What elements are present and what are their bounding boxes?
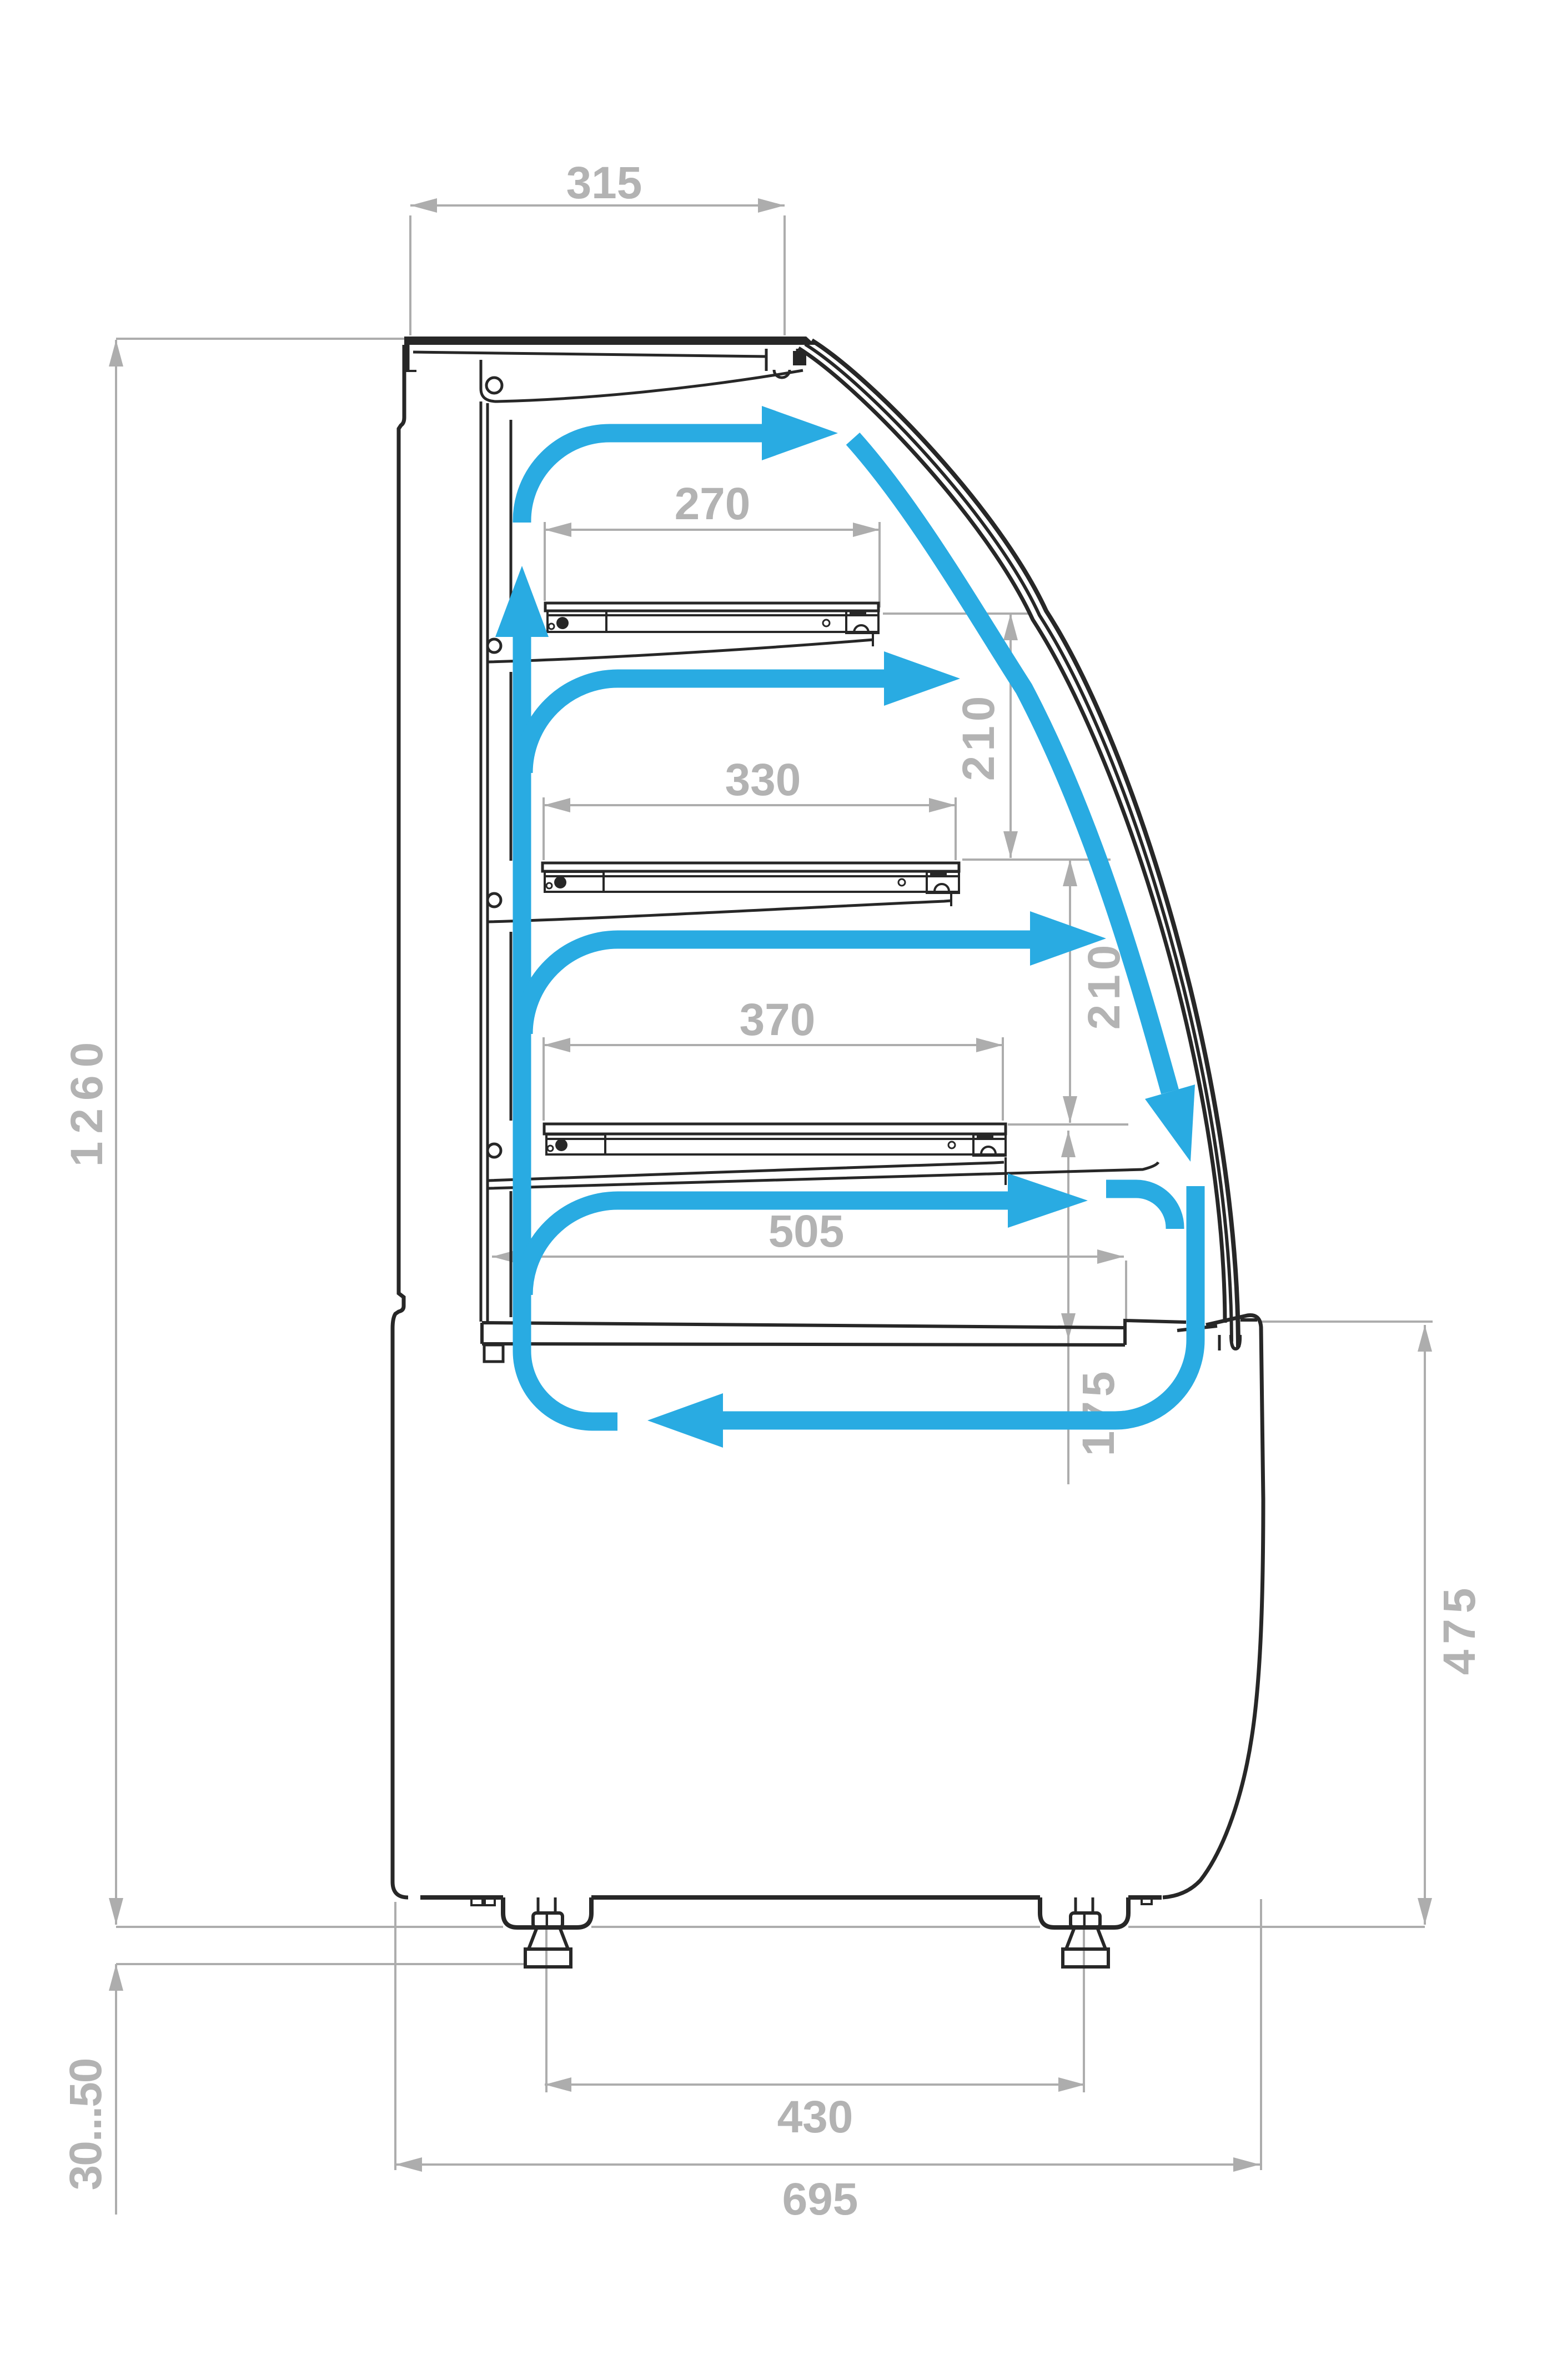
svg-text:475: 475 <box>1434 1583 1485 1675</box>
svg-text:210: 210 <box>953 692 1004 781</box>
svg-text:370: 370 <box>740 995 816 1045</box>
svg-text:505: 505 <box>769 1206 845 1257</box>
svg-text:30...50: 30...50 <box>61 2059 111 2191</box>
svg-text:430: 430 <box>777 2092 853 2142</box>
svg-text:315: 315 <box>566 158 642 208</box>
svg-text:1260: 1260 <box>62 1035 112 1167</box>
svg-text:330: 330 <box>725 755 801 805</box>
svg-text:270: 270 <box>675 479 751 529</box>
svg-text:695: 695 <box>782 2174 858 2225</box>
